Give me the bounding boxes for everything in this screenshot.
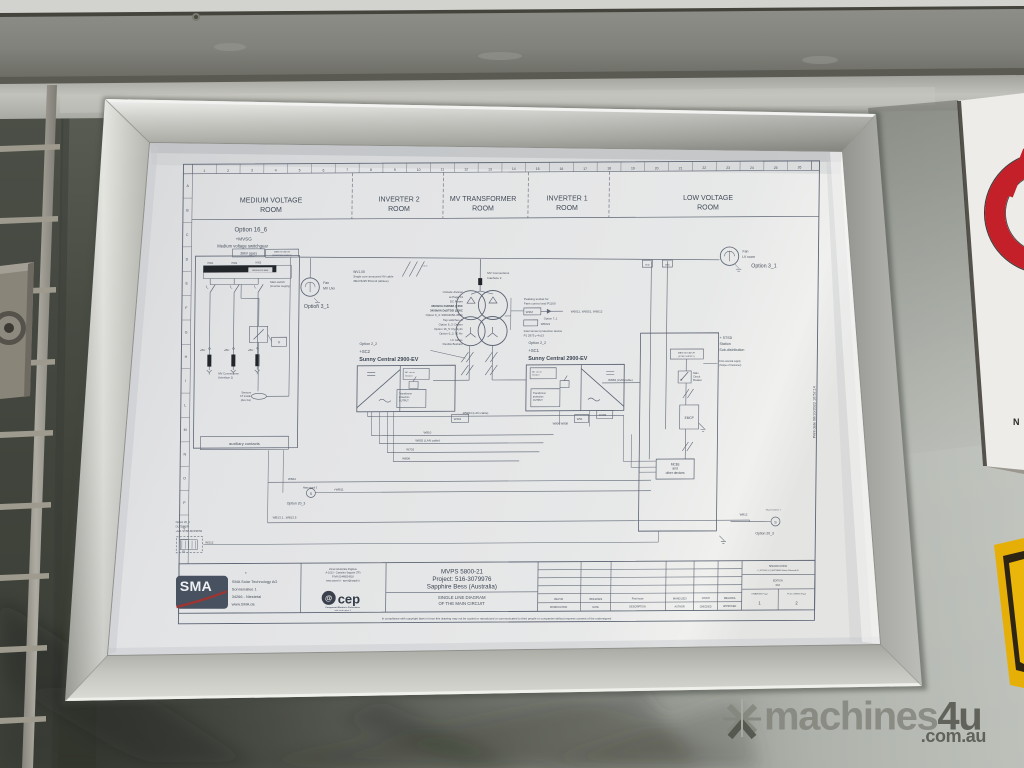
svg-text:17: 17 (583, 167, 587, 171)
svg-text:Project: 516-3079976: Project: 516-3079976 (432, 576, 492, 583)
svg-text:MV TRANSFORMER: MV TRANSFORMER (450, 196, 516, 203)
svg-text:L: L (184, 404, 186, 408)
svg-text:Option 20_3: Option 20_3 (176, 520, 191, 524)
svg-text:016: 016 (776, 583, 781, 587)
svg-text:M: M (184, 428, 187, 432)
svg-text:(Scope of Customer): (Scope of Customer) (719, 364, 741, 367)
svg-text:W802 (LAN cable): W802 (LAN cable) (415, 439, 440, 443)
svg-text:22: 22 (702, 166, 706, 170)
svg-text:In compliance with copyright l: In compliance with copyright laws in for… (382, 617, 612, 621)
svg-text:Option 3_1: Option 3_1 (751, 264, 776, 270)
svg-text:Station: Station (720, 342, 731, 346)
svg-text:Haan gggnl 3: Haan gggnl 3 (303, 487, 318, 490)
svg-text:13: 13 (488, 167, 492, 171)
svg-text:(Interface 1): (Interface 1) (218, 376, 233, 380)
svg-text:APPROVED: APPROVED (723, 605, 737, 608)
svg-text:WS12: WS12 (205, 541, 214, 545)
svg-text:14: 14 (512, 167, 516, 171)
svg-text:Option 6_2: 50 Hz: Option 6_2: 50 Hz (439, 332, 463, 336)
svg-text:16: 16 (560, 167, 564, 171)
svg-text:Option 6_3: 3300/4050-450V: Option 6_3: 3300/4050-450V (426, 313, 463, 317)
svg-text:Tap switches: 5: Tap switches: 5 (443, 318, 463, 322)
svg-text:Option 6_3: Drawn: Option 6_3: Drawn (439, 322, 463, 326)
svg-text:cep: cep (338, 591, 360, 606)
svg-text:23: 23 (726, 166, 730, 170)
svg-text:21: 21 (679, 166, 683, 170)
svg-text:Sunny Central 2900-EV: Sunny Central 2900-EV (528, 356, 587, 362)
svg-text:Breaker: Breaker (693, 379, 702, 382)
svg-text:19: 19 (631, 167, 635, 171)
svg-text:MEDIUM VOLTAGE: MEDIUM VOLTAGE (240, 197, 303, 204)
svg-text:12: 12 (464, 168, 468, 172)
svg-text:MAIN ISOLATION: MAIN ISOLATION (274, 251, 291, 254)
svg-text:4: 4 (275, 169, 277, 173)
svg-text:2: 2 (227, 169, 229, 173)
svg-text:MVPS 5800-21: MVPS 5800-21 (441, 569, 484, 576)
svg-text:20: 20 (655, 167, 659, 171)
svg-text:MELORIA: MELORIA (724, 596, 736, 600)
svg-text:FOLLOWING Page: FOLLOWING Page (787, 593, 807, 595)
svg-text:5: 5 (299, 168, 301, 172)
svg-text:Option 16_5: Dyn1y11: Option 16_5: Dyn1y11 (434, 327, 463, 331)
svg-text:Sapphire Bess (Australia): Sapphire Bess (Australia) (427, 584, 497, 591)
svg-text:Interconnect protection device: Interconnect protection device (524, 329, 563, 333)
svg-text:Componenti Elettrici e Preforn: Componenti Elettrici e Preforniture (325, 606, 360, 609)
svg-text:H002: H002 (232, 262, 238, 265)
svg-text:SINGLE LINE DIAGRAM: SINGLE LINE DIAGRAM (438, 595, 486, 600)
svg-text:CIVATI: CIVATI (702, 596, 710, 600)
svg-text:breaker: breaker (405, 374, 413, 377)
svg-text:SMA: SMA (180, 579, 212, 595)
svg-text:MV Uxx: MV Uxx (323, 287, 335, 291)
svg-text:WV1-05: WV1-05 (353, 270, 365, 274)
svg-text:DC Power: DC Power (450, 299, 463, 303)
svg-text:+MVSG: +MVSG (236, 236, 253, 241)
svg-text:O: O (183, 477, 186, 481)
svg-text:WW04 (LAN cable): WW04 (LAN cable) (463, 411, 489, 415)
svg-text:DESCRIPTION: DESCRIPTION (629, 606, 646, 609)
svg-text:with wind raptor 3: with wind raptor 3 (334, 609, 351, 612)
svg-text:18: 18 (607, 167, 611, 171)
svg-text:AC circuit: AC circuit (405, 371, 415, 374)
svg-text:3600kVA Dd0MM @36C: 3600kVA Dd0MM @36C (431, 304, 464, 308)
svg-text:+BC: +BC (248, 348, 254, 352)
svg-text:Sensors: Sensors (241, 390, 251, 394)
svg-text:W408: W408 (599, 413, 607, 417)
svg-text:10: 10 (417, 168, 421, 172)
svg-text:breaker: breaker (532, 374, 540, 377)
svg-text:Sunny Central 2900-EV: Sunny Central 2900-EV (359, 357, 418, 363)
svg-text:I: I (185, 379, 186, 383)
svg-text:DATE: DATE (592, 606, 599, 609)
svg-text:H003: H003 (256, 262, 262, 265)
svg-text:Peaking socket for: Peaking socket for (524, 297, 549, 301)
svg-text:at Page 01: at Page 01 (449, 295, 463, 299)
svg-text:First external supply: First external supply (719, 360, 741, 363)
svg-text:Sub-distribution: Sub-distribution (719, 348, 744, 352)
svg-text:EDITION: EDITION (773, 580, 783, 583)
svg-text:W40: W40 (645, 264, 650, 266)
svg-text:Fan: Fan (743, 250, 749, 254)
svg-text:Option 20_3: Option 20_3 (755, 532, 774, 536)
svg-text:.com.au: .com.au (921, 726, 986, 746)
svg-text:LOW VOLTAGE: LOW VOLTAGE (683, 195, 733, 202)
svg-text:ROOM: ROOM (472, 206, 494, 213)
svg-text:3: 3 (251, 169, 253, 173)
svg-text:@: @ (325, 594, 332, 603)
svg-text:36kV/3x95 35mm2 (al/stee): 36kV/3x95 35mm2 (al/stee) (353, 279, 388, 283)
svg-text:Option 3_1: Option 3_1 (304, 304, 329, 310)
svg-text:OUTDOOR: OUTDOOR (176, 524, 189, 528)
svg-text:Zona Industriale Pagliete: Zona Industriale Pagliete (329, 568, 357, 571)
svg-text:MV Connections: MV Connections (487, 271, 510, 275)
svg-text:D: D (186, 257, 189, 261)
svg-text:6: 6 (322, 168, 324, 172)
svg-text:R: R (182, 550, 185, 554)
svg-text:CHECKED: CHECKED (700, 605, 712, 608)
svg-text:MANGUZZI: MANGUZZI (673, 596, 687, 600)
svg-text:P.IVA 01448024518: P.IVA 01448024518 (332, 576, 354, 579)
svg-text:W806 W808: W806 W808 (553, 422, 569, 426)
svg-text:W812: W812 (740, 513, 748, 517)
svg-text:Option 2_2: Option 2_2 (360, 342, 378, 346)
svg-text:LV room: LV room (742, 255, 755, 259)
svg-text:INVERTER 1: INVERTER 1 (547, 196, 588, 203)
svg-text:REV:00: REV:00 (554, 597, 563, 601)
svg-text:15: 15 (536, 167, 540, 171)
svg-text:OF THE MAIN CIRCUIT: OF THE MAIN CIRCUIT (438, 601, 485, 606)
svg-text:Fans control and P1100: Fans control and P1100 (524, 301, 556, 305)
svg-text:MEDIUM VOLTAGE: MEDIUM VOLTAGE (252, 269, 269, 272)
svg-text:auxiliary contacts: auxiliary contacts (229, 441, 260, 446)
svg-text:+BC: +BC (200, 348, 206, 352)
svg-text:Unitude division: Unitude division (443, 290, 464, 294)
svg-text:+SC1: +SC1 (528, 348, 539, 353)
svg-text:OUTPUT: OUTPUT (399, 400, 409, 403)
svg-text:C_6C51462_01_MVPS8000 Station: C_6C51462_01_MVPS8000 Station Released 0… (757, 569, 798, 572)
svg-text:Option 7_1: Option 7_1 (544, 316, 558, 320)
svg-text:W6011, W6051, W6012: W6011, W6051, W6012 (571, 310, 603, 314)
svg-text:N: N (183, 452, 186, 456)
svg-text:H: H (185, 355, 188, 359)
svg-text:DRAWING Page: DRAWING Page (752, 593, 769, 596)
svg-text:+SC2: +SC2 (359, 349, 370, 354)
svg-text:Single core armoured HV cable: Single core armoured HV cable (353, 275, 394, 279)
svg-text:1: 1 (203, 169, 205, 173)
svg-text:W2M: W2M (526, 310, 534, 314)
svg-text:36kV (gas): 36kV (gas) (240, 252, 256, 256)
svg-text:9: 9 (394, 168, 396, 172)
svg-text:7: 7 (346, 168, 348, 172)
svg-text:and: and (672, 467, 678, 471)
svg-text:www.SMA.de: www.SMA.de (232, 602, 255, 607)
svg-text:25: 25 (774, 166, 778, 170)
svg-text:+4A1 STSP-MCPROW: +4A1 STSP-MCPROW (176, 529, 203, 533)
svg-text:W844: W844 (288, 477, 296, 481)
svg-text:W806: W806 (402, 457, 410, 461)
svg-text:W51: W51 (577, 417, 583, 421)
svg-text:34266 - Niestetal: 34266 - Niestetal (232, 594, 262, 599)
svg-text:Flexible Busbars: Flexible Busbars (443, 342, 464, 346)
svg-text:OUTPUT: OUTPUT (533, 399, 543, 402)
svg-text:(inverter supply): (inverter supply) (270, 284, 290, 288)
svg-text:+ STSD: + STSD (720, 336, 733, 340)
svg-text:26: 26 (798, 166, 802, 170)
svg-text:SPECIFICATION: SPECIFICATION (769, 565, 787, 568)
svg-text:A-1013 - Casteltro Sagutte (TF: A-1013 - Casteltro Sagutte (TF) (325, 572, 360, 575)
svg-text:ROOM: ROOM (388, 206, 410, 213)
svg-text:other devices: other devices (666, 471, 685, 475)
svg-text:n m m: n m m (421, 265, 427, 267)
svg-text:Option 16_6: Option 16_6 (234, 227, 267, 233)
svg-text:Interface 2: Interface 2 (487, 276, 502, 280)
svg-text:Print date 06/10/2022 10:52:1: Print date 06/10/2022 10:52:14 (813, 386, 817, 438)
svg-text:WB13.1...WB13.5: WB13.1...WB13.5 (273, 516, 297, 520)
svg-text:8: 8 (370, 168, 372, 172)
svg-text:H001: H001 (208, 262, 214, 265)
svg-text:Sonnenallee 1: Sonnenallee 1 (232, 587, 257, 592)
svg-text:CT inside: CT inside (240, 394, 251, 398)
svg-text:11: 11 (441, 168, 445, 172)
svg-text:(STSD SUPPLY): (STSD SUPPLY) (678, 356, 695, 358)
svg-text:SMA Solar Technology AG: SMA Solar Technology AG (232, 579, 278, 584)
svg-text:Haan feed for 7: Haan feed for 7 (766, 509, 782, 512)
svg-text:Option 20_3: Option 20_3 (287, 502, 306, 506)
svg-text:Fan: Fan (323, 281, 329, 285)
svg-text:3450kVA Dd2TDD @36C: 3450kVA Dd2TDD @36C (430, 309, 464, 313)
svg-text:N: N (1013, 417, 1020, 427)
svg-text:+WB11: +WB11 (334, 487, 344, 491)
svg-text:G: G (185, 331, 188, 335)
svg-text:+BC: +BC (224, 348, 230, 352)
svg-text:INVERTER 2: INVERTER 2 (379, 197, 420, 204)
svg-text:LC cables: LC cables (451, 338, 464, 342)
svg-text:(dev fus): (dev fus) (241, 398, 251, 402)
svg-text:AUTHOR: AUTHOR (675, 606, 685, 609)
svg-text:W60: W60 (665, 264, 670, 266)
svg-text:First issue: First issue (632, 597, 644, 601)
svg-text:W702: W702 (406, 448, 414, 452)
svg-text:05/04/2022: 05/04/2022 (589, 597, 603, 601)
svg-text:MAIN ISOLATOR: MAIN ISOLATOR (678, 352, 695, 355)
svg-text:ROOM: ROOM (260, 207, 282, 214)
svg-text:AC circuit: AC circuit (532, 370, 542, 373)
svg-text:C: C (186, 233, 189, 237)
svg-text:ROOM: ROOM (556, 205, 578, 212)
svg-text:Option 2_2: Option 2_2 (529, 341, 547, 345)
svg-text:W810: W810 (424, 430, 432, 434)
svg-text:W6021: W6021 (541, 322, 551, 326)
svg-text:www.cepsrl.it - apert@napoli.i: www.cepsrl.it - apert@napoli.it (326, 579, 360, 582)
svg-text:W6B1 (LVR cable): W6B1 (LVR cable) (608, 378, 633, 382)
svg-text:24: 24 (750, 166, 754, 170)
svg-text:W404: W404 (454, 417, 462, 421)
svg-text:Medium voltage switchgear: Medium voltage switchgear (217, 243, 268, 248)
svg-text:ROOM: ROOM (697, 204, 719, 211)
svg-text:EMCP: EMCP (685, 416, 694, 420)
svg-text:P1 2975 y 4n13: P1 2975 y 4n13 (524, 333, 545, 337)
svg-text:MODIFICATION: MODIFICATION (550, 606, 567, 609)
